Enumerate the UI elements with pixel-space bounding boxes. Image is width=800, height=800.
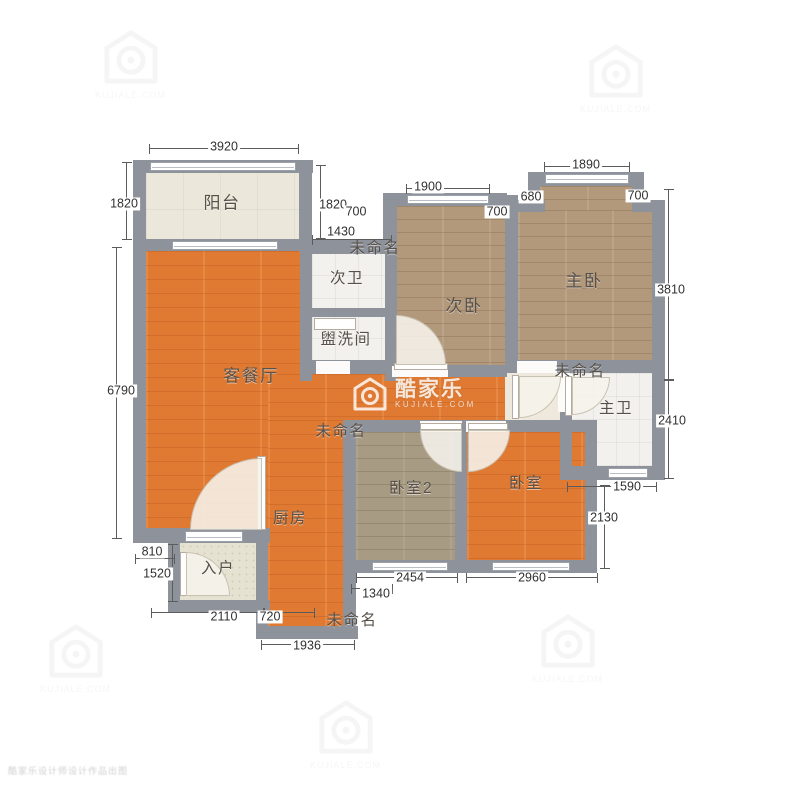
dim-label: 1900 [412, 180, 444, 193]
watermark-tile: KUJIALE.COM [310, 698, 381, 770]
wall [256, 543, 268, 603]
room-label-washroom: 盥洗间 [320, 327, 371, 349]
dim-label: 3810 [655, 283, 687, 296]
dim-label: 2454 [394, 571, 426, 584]
wall [585, 420, 597, 570]
door-gap-washroom [316, 361, 350, 374]
dim-label: 700 [344, 205, 369, 218]
wall [343, 420, 356, 639]
dim-label: 700 [626, 189, 651, 202]
room-label-unnamed-mid: 未命名 [315, 419, 366, 441]
dim-label: 1520 [141, 567, 173, 580]
wall [652, 386, 665, 480]
dim-label: 1590 [611, 480, 643, 493]
watermark-tile: KUJIALE.COM [95, 28, 166, 100]
door-leaf-master [512, 375, 519, 419]
dim-label: 810 [140, 545, 165, 558]
door-leaf-bedroom2 [420, 423, 462, 430]
dim-label: 6790 [105, 384, 137, 397]
watermark-tile: KUJIALE.COM [532, 612, 603, 684]
door-leaf-master-bath [565, 376, 572, 416]
corner-watermark-text: 酷家乐设计师设计作品出图 [8, 764, 128, 777]
dim-label: 700 [485, 205, 510, 218]
door-gap-master [517, 361, 557, 373]
dim-label: 2130 [588, 511, 620, 524]
window-balcony-living [172, 241, 278, 250]
dim-label: 1890 [570, 158, 602, 171]
room-label-second-bedroom: 次卧 [446, 292, 483, 317]
wall [505, 195, 518, 365]
wall [312, 308, 385, 317]
watermark-domain: KUJIALE.COM [395, 400, 476, 409]
room-label-second-bath: 次卫 [330, 266, 364, 288]
floor-master-bay [540, 186, 632, 212]
kujiale-house-icon [352, 376, 388, 412]
room-label-unnamed-right: 未命名 [554, 359, 605, 381]
room-label-unnamed-top: 未命名 [349, 236, 400, 258]
dim-line [668, 380, 669, 478]
room-label-entry: 入户 [201, 556, 235, 578]
room-label-bedroom: 卧室 [509, 471, 543, 493]
room-label-kitchen: 厨房 [273, 506, 307, 528]
window-balcony-top [150, 162, 296, 171]
kujiale-watermark: 酷家乐 KUJIALE.COM [352, 376, 476, 412]
room-label-bedroom2: 卧室2 [389, 476, 433, 498]
window-master-bedroom [545, 174, 629, 184]
dim-label: 2110 [209, 610, 240, 623]
dim-label: 1340 [360, 587, 392, 600]
window-entry [185, 531, 243, 542]
room-label-living-dining: 客餐厅 [223, 362, 279, 387]
wall [133, 160, 146, 543]
dim-label: 680 [519, 190, 544, 203]
window-master-bath [608, 468, 648, 478]
dim-label: 3920 [208, 140, 240, 153]
watermark-tile: KUJIALE.COM [580, 42, 651, 114]
window-second-bedroom [407, 195, 489, 204]
room-label-master-bath: 主卫 [599, 396, 633, 418]
watermark-brand: 酷家乐 [395, 379, 476, 400]
room-label-master-bedroom: 主卧 [566, 267, 603, 292]
door-leaf-bedroom [468, 423, 508, 430]
dim-label: 2410 [656, 414, 688, 427]
room-label-unnamed-bottom: 未命名 [326, 608, 377, 630]
watermark-tile: KUJIALE.COM [40, 622, 111, 694]
room-label-balcony: 阳台 [204, 189, 241, 214]
dim-line [604, 486, 605, 568]
dim-label: 1936 [291, 639, 323, 652]
dim-label: 2960 [516, 571, 548, 584]
dim-label: 1820 [108, 197, 140, 210]
dim-label: 720 [258, 610, 283, 623]
floor-plan-canvas: 3920 1820 1820 1430 700 1900 700 680 189… [0, 0, 800, 800]
